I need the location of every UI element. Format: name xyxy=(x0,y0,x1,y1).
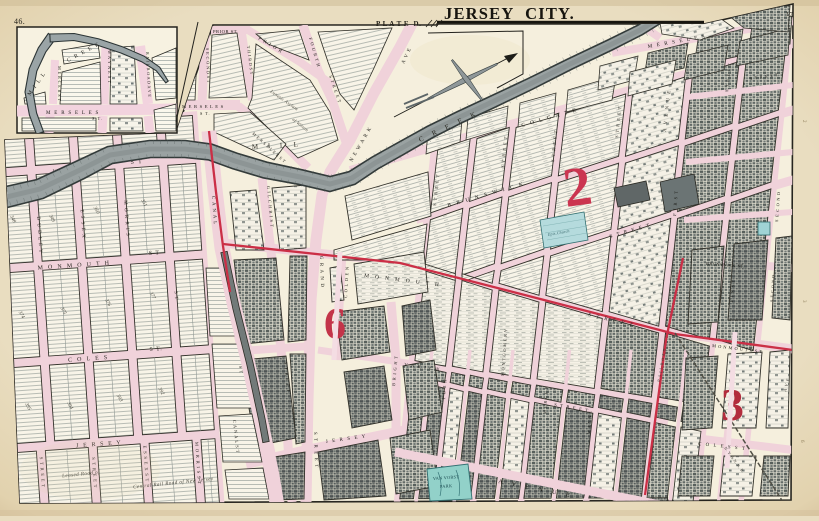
svg-text:17: 17 xyxy=(786,11,794,18)
svg-text:46.: 46. xyxy=(14,17,25,26)
svg-text:W A Y N E S T: W A Y N E S T xyxy=(107,50,112,84)
svg-text:S T.: S T. xyxy=(92,116,103,121)
svg-text:M E R S E L E S: M E R S E L E S xyxy=(182,104,224,109)
svg-text:S T: S T xyxy=(238,366,244,374)
svg-text:PRIOR ST: PRIOR ST xyxy=(213,29,237,34)
svg-text:P L A T E D.: P L A T E D. xyxy=(376,20,421,28)
svg-text:M E R C E R S T: M E R C E R S T xyxy=(57,66,62,101)
svg-text:S T.: S T. xyxy=(200,111,211,116)
svg-text:PARK: PARK xyxy=(440,483,453,489)
svg-text:JERSEY CITY.: JERSEY CITY. xyxy=(444,4,575,23)
